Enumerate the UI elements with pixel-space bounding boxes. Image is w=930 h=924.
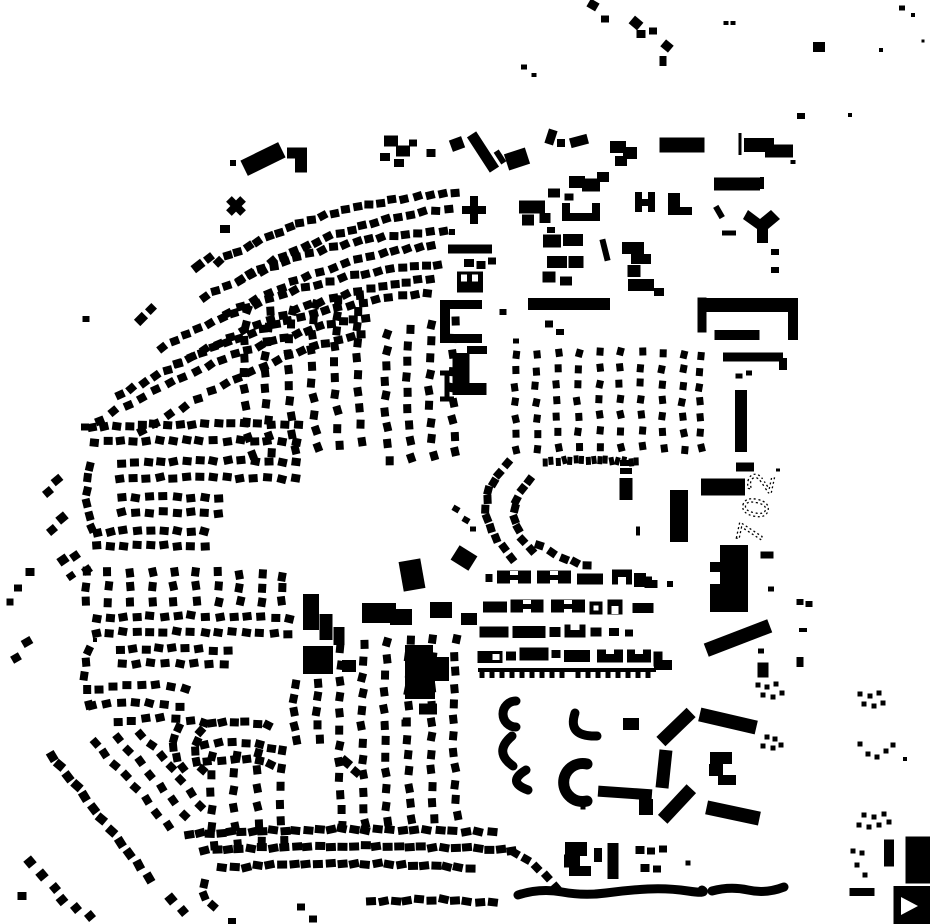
crescent-3 — [503, 736, 513, 766]
map-label-702: 702 — [730, 464, 785, 548]
y-block — [743, 210, 780, 243]
house-rows — [46, 189, 706, 912]
building-footprint-map: 702 — [0, 0, 930, 924]
l-block — [668, 193, 692, 215]
wavy-terrace-2 — [712, 887, 784, 891]
crescent-5 — [564, 764, 587, 802]
wavy-terrace-1 — [518, 889, 703, 895]
big-l-block — [405, 645, 449, 699]
u-open-top-block — [562, 203, 600, 221]
crescent-4 — [516, 770, 528, 790]
crescent-2 — [573, 713, 597, 736]
map-canvas: 702 — [0, 0, 930, 924]
crescent-1 — [503, 701, 516, 727]
u-block-center — [440, 300, 482, 343]
h-block — [635, 192, 655, 212]
building-shapes — [405, 192, 918, 915]
